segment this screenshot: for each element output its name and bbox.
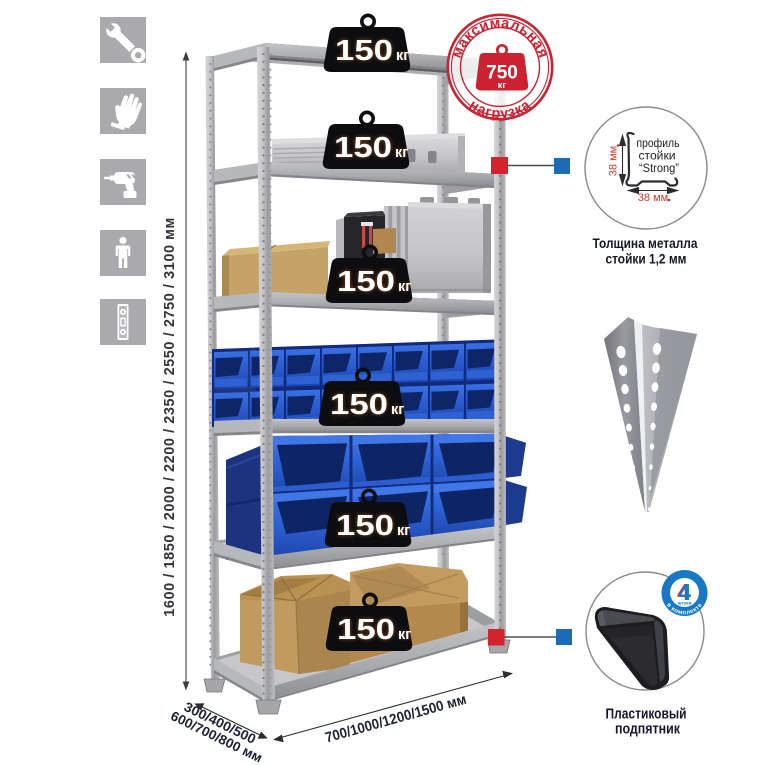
svg-text:150: 150 (330, 389, 388, 421)
svg-text:150: 150 (337, 266, 395, 298)
svg-text:кг: кг (498, 80, 507, 91)
svg-text:38 мм: 38 мм (638, 192, 668, 204)
svg-text:38 мм: 38 мм (608, 146, 620, 176)
svg-text:150: 150 (335, 35, 393, 67)
svg-text:кг: кг (395, 145, 408, 161)
svg-text:150: 150 (336, 510, 394, 542)
svg-text:штуки: штуки (678, 601, 692, 606)
svg-text:1600 / 1850 / 2000 / 2200 / 23: 1600 / 1850 / 2000 / 2200 / 2350 / 2550 … (162, 217, 178, 617)
svg-text:подпятник: подпятник (615, 722, 681, 738)
svg-text:кг: кг (397, 523, 410, 539)
svg-text:“Strong”: “Strong” (639, 161, 679, 175)
svg-text:150: 150 (334, 132, 392, 164)
svg-text:стойки 1,2 мм: стойки 1,2 мм (606, 251, 687, 267)
svg-text:Пластиковый: Пластиковый (606, 707, 687, 723)
svg-text:кг: кг (398, 279, 411, 295)
svg-text:Толщина металла: Толщина металла (593, 235, 698, 251)
svg-text:кг: кг (391, 402, 404, 418)
svg-text:150: 150 (337, 614, 395, 646)
svg-text:кг: кг (396, 48, 409, 64)
svg-text:кг: кг (398, 627, 411, 643)
